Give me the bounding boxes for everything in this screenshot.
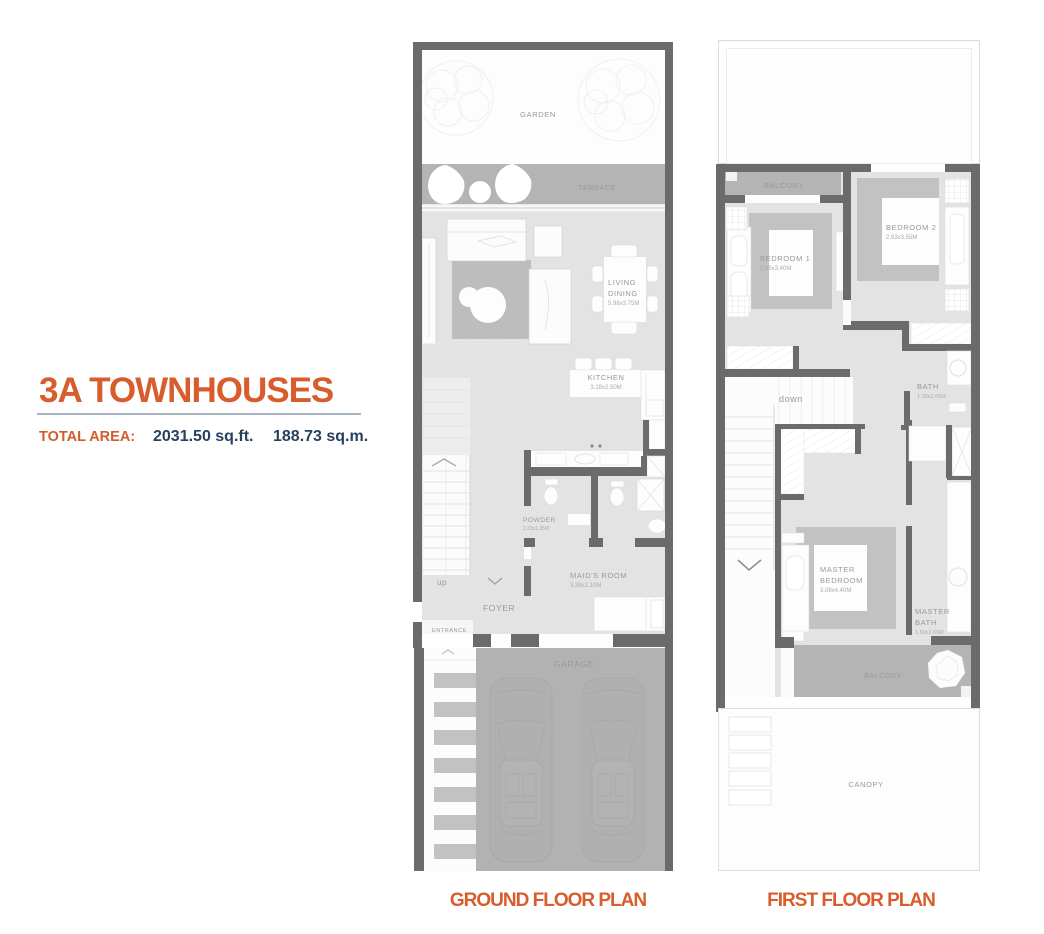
svg-text:3A TOWNHOUSES: 3A TOWNHOUSES <box>39 371 333 410</box>
svg-text:DINING: DINING <box>608 289 638 298</box>
svg-text:FOYER: FOYER <box>483 603 515 613</box>
svg-text:CANOPY: CANOPY <box>848 780 883 789</box>
svg-text:LIVING: LIVING <box>608 278 636 287</box>
svg-text:2.93x3.55M: 2.93x3.55M <box>886 235 917 241</box>
svg-text:BEDROOM 1: BEDROOM 1 <box>760 254 810 263</box>
svg-text:BATH: BATH <box>915 618 937 627</box>
svg-text:BEDROOM: BEDROOM <box>820 576 863 585</box>
svg-text:BALCONY: BALCONY <box>764 181 804 190</box>
svg-text:BALCONY: BALCONY <box>864 673 902 680</box>
svg-text:3.08x4.40M: 3.08x4.40M <box>820 588 851 594</box>
svg-text:up: up <box>437 578 447 587</box>
svg-text:GARAGE: GARAGE <box>554 659 594 669</box>
svg-text:3.38x2.10M: 3.38x2.10M <box>570 583 601 589</box>
svg-text:KITCHEN: KITCHEN <box>587 373 624 382</box>
svg-text:down: down <box>779 394 803 404</box>
svg-text:1.50x2.65M: 1.50x2.65M <box>915 630 944 636</box>
svg-text:5.98x3.75M: 5.98x3.75M <box>608 301 639 307</box>
svg-text:TERRACE: TERRACE <box>578 185 616 192</box>
svg-text:BATH: BATH <box>917 382 939 391</box>
svg-text:BEDROOM 2: BEDROOM 2 <box>886 223 936 232</box>
svg-text:1.30x2.65M: 1.30x2.65M <box>917 394 946 400</box>
svg-text:MASTER: MASTER <box>915 607 950 616</box>
svg-text:2031.50 sq.ft.: 2031.50 sq.ft. <box>153 428 254 445</box>
svg-text:FIRST FLOOR PLAN: FIRST FLOOR PLAN <box>767 890 935 911</box>
svg-text:TOTAL AREA:: TOTAL AREA: <box>39 429 135 445</box>
svg-text:3.28x2.50M: 3.28x2.50M <box>590 385 621 391</box>
svg-text:MASTER: MASTER <box>820 565 855 574</box>
svg-text:POWDER: POWDER <box>523 517 556 524</box>
svg-text:GROUND FLOOR PLAN: GROUND FLOOR PLAN <box>450 890 646 911</box>
svg-text:188.73 sq.m.: 188.73 sq.m. <box>273 428 368 445</box>
svg-text:ENTRANCE: ENTRANCE <box>432 628 467 634</box>
svg-text:GARDEN: GARDEN <box>520 110 556 119</box>
svg-text:MAID'S ROOM: MAID'S ROOM <box>570 571 627 580</box>
svg-text:2.95x3.40M: 2.95x3.40M <box>760 266 791 272</box>
svg-text:1.33x1.35M: 1.33x1.35M <box>523 526 549 532</box>
